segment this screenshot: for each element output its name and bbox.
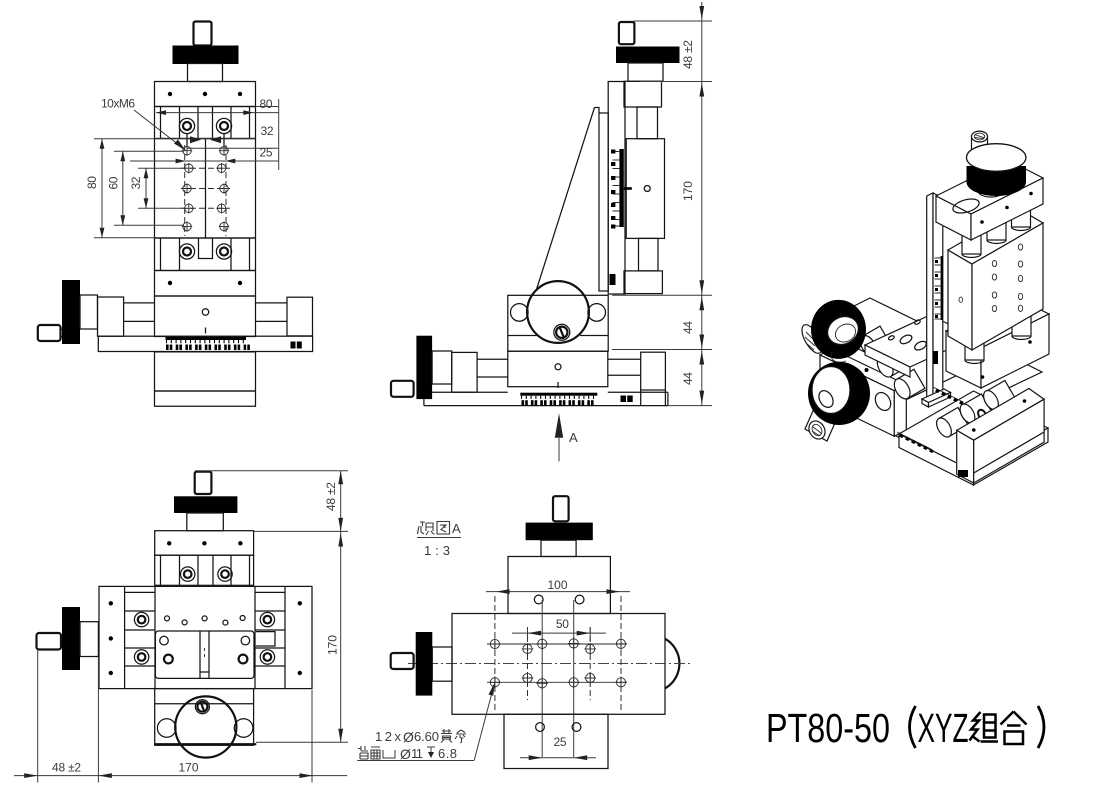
svg-text:32: 32 bbox=[261, 124, 274, 138]
svg-text:Ø: Ø bbox=[403, 729, 414, 745]
svg-text:PT80-50: PT80-50 bbox=[766, 705, 890, 751]
svg-text:44: 44 bbox=[681, 321, 695, 334]
svg-text:48 ±2: 48 ±2 bbox=[681, 40, 695, 69]
svg-text:25: 25 bbox=[554, 735, 567, 749]
svg-text:170: 170 bbox=[681, 181, 695, 201]
svg-text:48 ±2: 48 ±2 bbox=[324, 482, 338, 511]
svg-text:XYZ: XYZ bbox=[918, 705, 969, 751]
svg-text:60: 60 bbox=[107, 176, 121, 189]
svg-text:6.8: 6.8 bbox=[438, 746, 457, 761]
svg-text:A: A bbox=[452, 521, 461, 536]
svg-text:10xM6: 10xM6 bbox=[101, 97, 135, 111]
svg-text:12x: 12x bbox=[375, 729, 402, 744]
svg-text:80: 80 bbox=[260, 97, 273, 111]
svg-text:1 : 3: 1 : 3 bbox=[424, 543, 450, 558]
svg-text:25: 25 bbox=[260, 146, 273, 160]
svg-text:80: 80 bbox=[85, 176, 99, 189]
svg-text:A: A bbox=[569, 430, 578, 445]
svg-text:6.60: 6.60 bbox=[414, 729, 439, 744]
svg-text:11: 11 bbox=[411, 746, 423, 761]
svg-text:170: 170 bbox=[326, 635, 340, 655]
svg-text:48 ±2: 48 ±2 bbox=[52, 761, 81, 775]
svg-text:50: 50 bbox=[556, 617, 569, 631]
svg-text:170: 170 bbox=[179, 761, 199, 775]
svg-text:44: 44 bbox=[681, 372, 695, 385]
svg-text:32: 32 bbox=[129, 176, 143, 189]
svg-text:Ø: Ø bbox=[400, 746, 411, 762]
svg-text:100: 100 bbox=[548, 578, 568, 592]
